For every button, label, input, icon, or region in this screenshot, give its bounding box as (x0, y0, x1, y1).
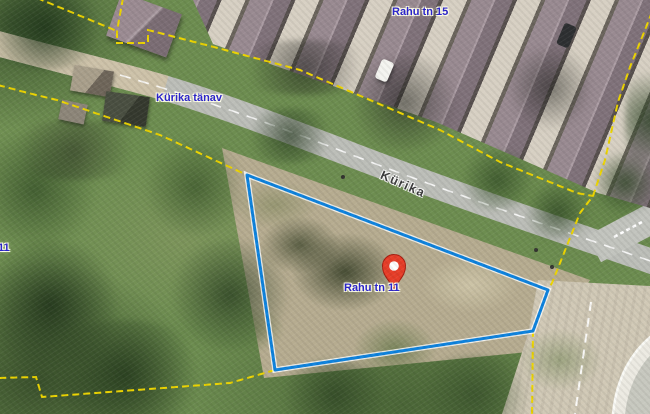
imagery-grain (0, 0, 650, 414)
aerial-map-canvas[interactable]: Rahu tn 15 Kürika tänav Kürika Rahu tn 1… (0, 0, 650, 414)
